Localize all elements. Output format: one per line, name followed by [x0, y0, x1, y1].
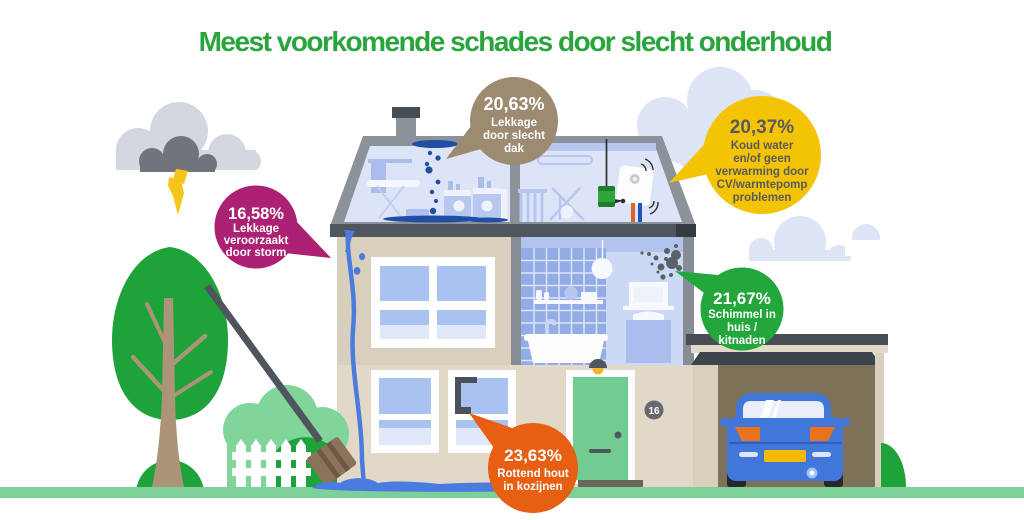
svg-text:Meest voorkomende schades door: Meest voorkomende schades door slecht on… [199, 26, 832, 57]
svg-text:verwarming door: verwarming door [715, 166, 809, 178]
svg-text:Koud water: Koud water [731, 140, 794, 152]
svg-text:Schimmel in: Schimmel in [708, 309, 776, 321]
svg-text:Lekkage: Lekkage [491, 117, 537, 129]
svg-text:door slecht: door slecht [483, 130, 545, 142]
svg-text:dak: dak [504, 143, 524, 155]
svg-text:Lekkage: Lekkage [233, 223, 279, 235]
svg-text:in kozijnen: in kozijnen [503, 481, 562, 493]
svg-text:door storm: door storm [226, 247, 287, 259]
svg-text:16,58%: 16,58% [228, 205, 284, 223]
svg-text:problemen: problemen [733, 192, 792, 204]
svg-text:20,63%: 20,63% [483, 94, 544, 114]
svg-text:16: 16 [648, 406, 660, 417]
svg-text:23,63%: 23,63% [504, 446, 562, 465]
svg-text:20,37%: 20,37% [730, 117, 795, 138]
svg-text:CV/warmtepomp: CV/warmtepomp [717, 179, 808, 191]
svg-text:huis /: huis / [727, 322, 758, 334]
svg-text:Rottend hout: Rottend hout [497, 468, 569, 480]
svg-text:21,67%: 21,67% [713, 289, 771, 308]
svg-text:kitnaden: kitnaden [718, 335, 765, 347]
svg-text:en/of geen: en/of geen [733, 153, 791, 165]
svg-text:veroorzaakt: veroorzaakt [224, 235, 289, 247]
